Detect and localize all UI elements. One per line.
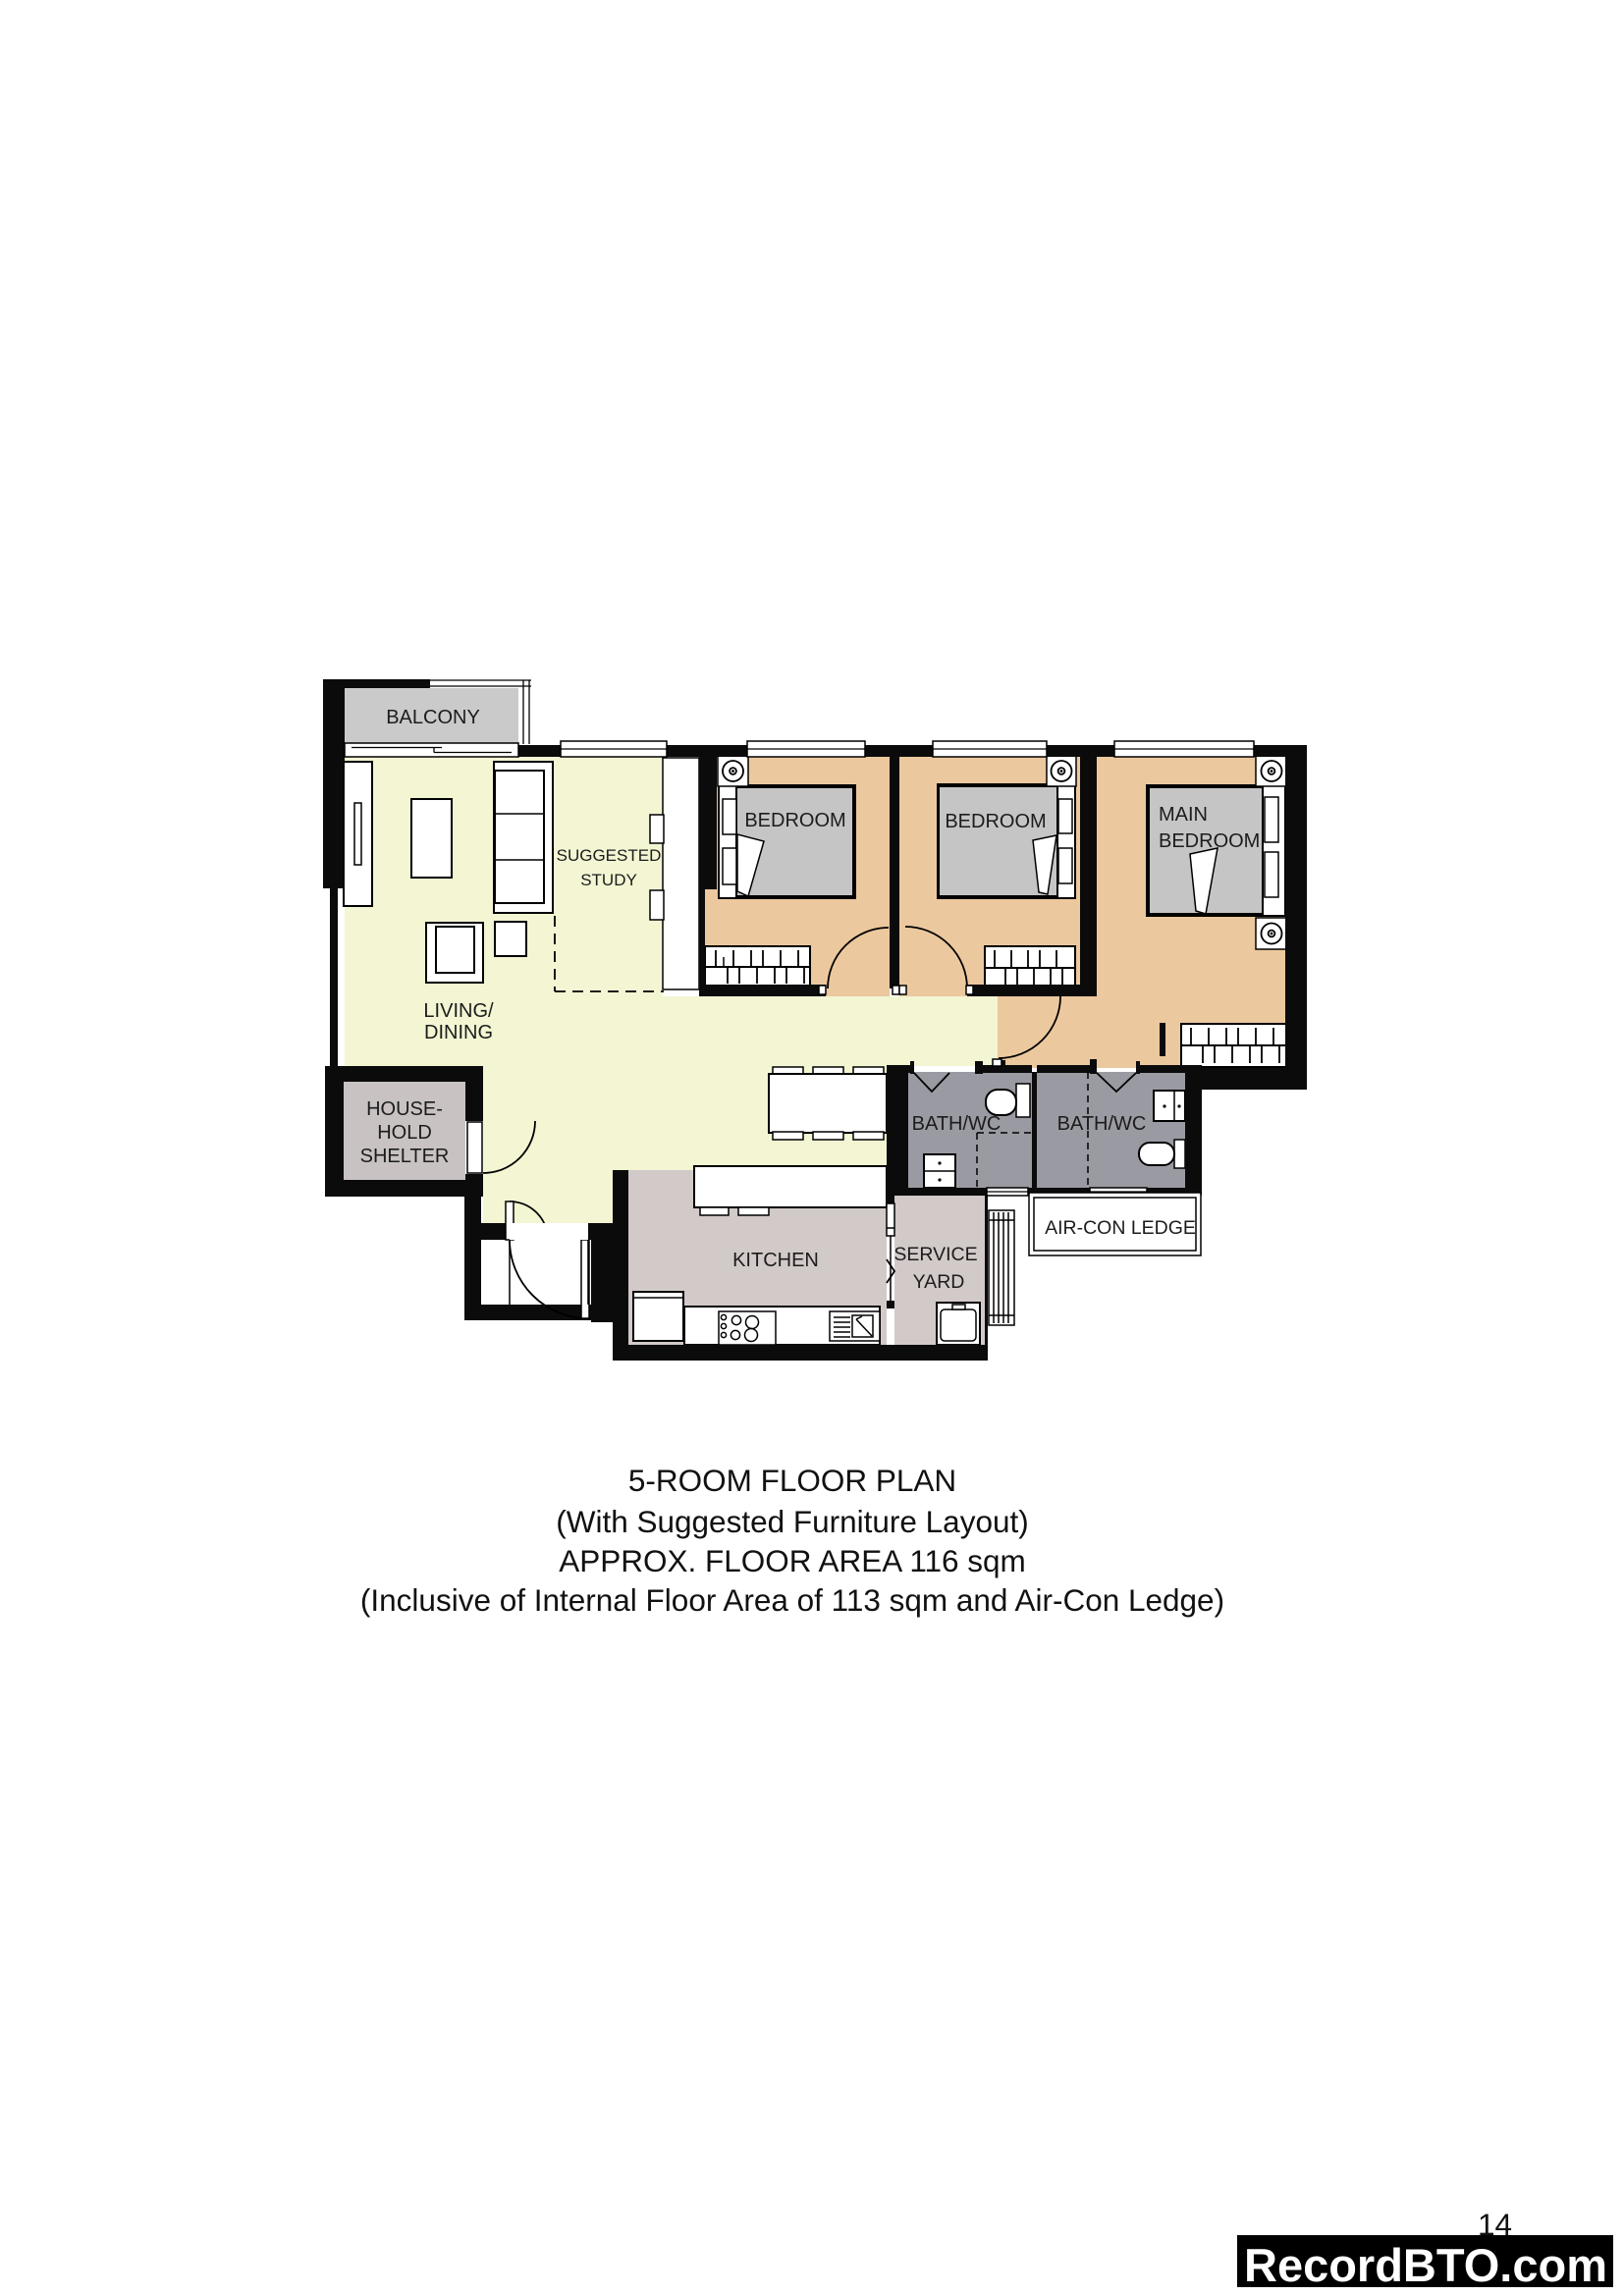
svg-text:APPROX. FLOOR AREA 116 sqm: APPROX. FLOOR AREA 116 sqm [559, 1543, 1026, 1578]
svg-text:STUDY: STUDY [580, 871, 637, 889]
svg-text:HOLD: HOLD [377, 1122, 432, 1144]
svg-text:KITCHEN: KITCHEN [732, 1250, 819, 1271]
svg-text:BEDROOM: BEDROOM [744, 810, 845, 831]
svg-text:LIVING/: LIVING/ [423, 1000, 494, 1022]
svg-text:5-ROOM FLOOR PLAN: 5-ROOM FLOOR PLAN [628, 1463, 956, 1498]
svg-text:SHELTER: SHELTER [360, 1146, 450, 1167]
svg-text:BEDROOM: BEDROOM [1159, 830, 1260, 852]
svg-text:YARD: YARD [913, 1271, 965, 1293]
svg-text:RecordBTO.com: RecordBTO.com [1244, 2239, 1607, 2291]
svg-text:AIR-CON LEDGE: AIR-CON LEDGE [1045, 1217, 1196, 1239]
svg-text:BEDROOM: BEDROOM [945, 811, 1046, 832]
svg-text:SUGGESTED: SUGGESTED [557, 846, 662, 865]
svg-text:DINING: DINING [424, 1022, 493, 1043]
svg-text:(Inclusive of Internal Floor A: (Inclusive of Internal Floor Area of 113… [360, 1582, 1224, 1618]
svg-text:(With Suggested Furniture Layo: (With Suggested Furniture Layout) [556, 1504, 1028, 1539]
svg-text:BATH/WC: BATH/WC [912, 1113, 1001, 1135]
svg-text:HOUSE-: HOUSE- [366, 1098, 443, 1120]
svg-text:BALCONY: BALCONY [386, 707, 480, 728]
svg-text:MAIN: MAIN [1159, 804, 1208, 826]
svg-text:SERVICE: SERVICE [893, 1244, 977, 1265]
svg-text:BATH/WC: BATH/WC [1057, 1113, 1147, 1135]
